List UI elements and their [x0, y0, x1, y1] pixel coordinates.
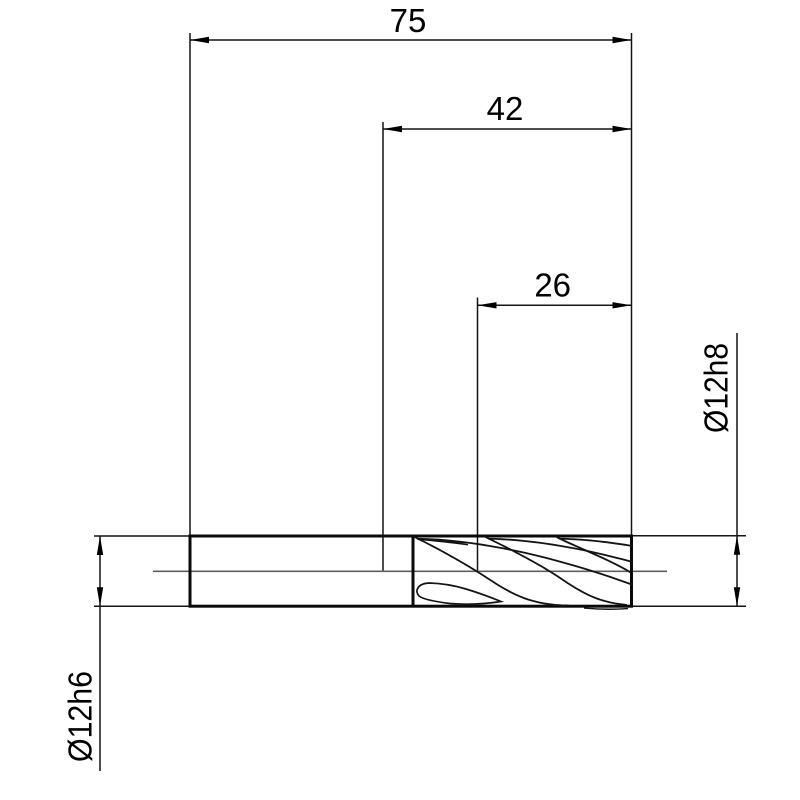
svg-text:26: 26: [534, 266, 571, 303]
svg-text:Ø12h8: Ø12h8: [697, 343, 734, 433]
svg-text:75: 75: [390, 2, 427, 39]
svg-text:Ø12h6: Ø12h6: [62, 671, 99, 762]
svg-text:42: 42: [487, 90, 524, 127]
